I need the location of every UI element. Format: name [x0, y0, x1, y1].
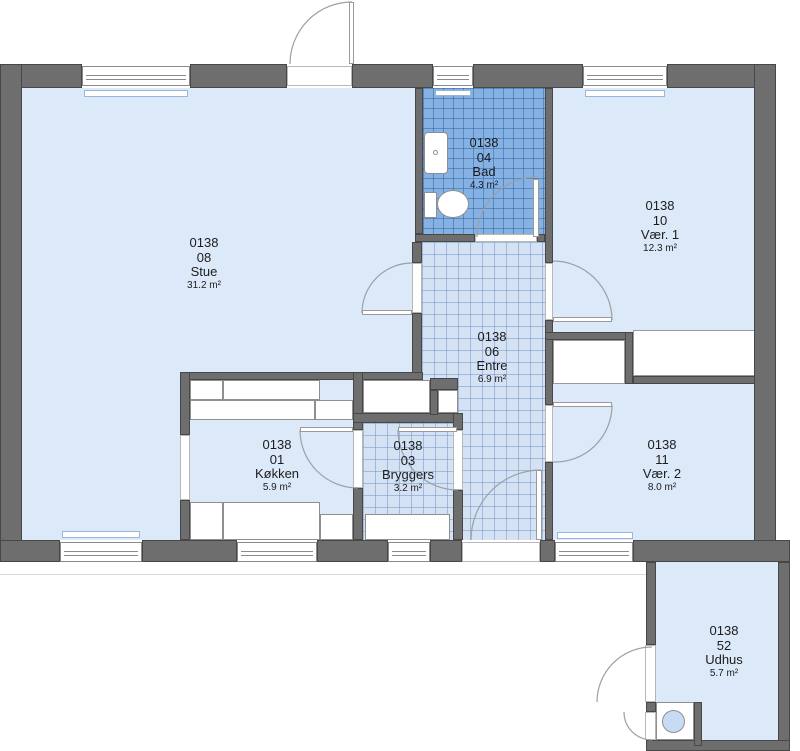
- door-leaf: [553, 317, 612, 322]
- window: [237, 542, 317, 562]
- kitchen-counter: [315, 400, 353, 420]
- wall: [646, 740, 790, 751]
- door-leaf: [398, 427, 457, 432]
- room-id: 0138: [705, 624, 743, 639]
- room-number: 03: [382, 453, 434, 468]
- wall: [545, 332, 627, 340]
- wall: [540, 540, 555, 562]
- room-label-bad: 0138 04 Bad 4.3 m²: [470, 136, 499, 192]
- room-id: 0138: [476, 330, 507, 345]
- wall: [0, 540, 60, 562]
- room-name: Stue: [187, 265, 221, 280]
- room-number: 06: [476, 344, 507, 359]
- kitchen-counter: [190, 400, 315, 420]
- room-id: 0138: [470, 136, 499, 151]
- toilet-tank: [424, 192, 437, 218]
- door-opening-koekken: [353, 430, 363, 488]
- room-label-entre: 0138 06 Entre 6.9 m²: [476, 330, 507, 386]
- room-label-udhus: 0138 52 Udhus 5.7 m²: [705, 624, 743, 680]
- wall: [353, 413, 463, 423]
- door-opening-vaer-2: [545, 405, 553, 462]
- closet-vaer-1: [633, 330, 755, 376]
- wall: [545, 462, 553, 540]
- door-leaf: [536, 470, 542, 540]
- window-sill: [585, 90, 665, 97]
- door-leaf: [300, 427, 353, 432]
- ground-line: [0, 574, 646, 575]
- room-name: Bryggers: [382, 468, 434, 483]
- window-sill: [435, 90, 471, 96]
- room-name: Vær. 2: [643, 467, 681, 482]
- wall: [142, 540, 237, 562]
- room-area: 31.2 m²: [187, 280, 221, 293]
- room-name: Bad: [470, 165, 499, 180]
- window: [82, 66, 190, 86]
- room-number: 11: [643, 452, 681, 467]
- window-sill: [62, 531, 140, 538]
- door-leaf: [553, 402, 612, 407]
- door-leaf: [349, 2, 354, 64]
- room-name: Entre: [476, 359, 507, 374]
- room-area: 5.7 m²: [705, 668, 743, 681]
- wall: [754, 64, 776, 562]
- door-opening-bryggers: [453, 430, 463, 490]
- window: [583, 66, 667, 86]
- wall: [646, 562, 656, 645]
- bryggers-appliance: [365, 514, 450, 540]
- wall: [778, 562, 790, 748]
- kitchen-counter: [190, 502, 223, 540]
- room-area: 6.9 m²: [476, 374, 507, 387]
- kitchen-counter: [190, 380, 223, 400]
- room-number: 52: [705, 638, 743, 653]
- room-label-vaer-1: 0138 10 Vær. 1 12.3 m²: [641, 199, 679, 255]
- udhus-basin: [662, 710, 685, 733]
- wall: [430, 540, 462, 562]
- door-opening-stue: [412, 263, 422, 313]
- door-leaf: [533, 179, 539, 237]
- wall: [353, 488, 363, 540]
- wall: [633, 376, 755, 384]
- duct-shaft: [438, 390, 458, 413]
- room-id: 0138: [255, 438, 299, 453]
- room-name: Køkken: [255, 467, 299, 482]
- door-opening-back: [462, 542, 540, 562]
- wall: [0, 64, 22, 562]
- floor-plan: 0138 08 Stue 31.2 m² 0138 04 Bad 4.3 m² …: [0, 0, 800, 751]
- wall: [545, 88, 553, 263]
- wall: [430, 390, 438, 415]
- room-number: 10: [641, 213, 679, 228]
- wall: [190, 64, 287, 88]
- kitchen-counter: [223, 502, 320, 540]
- room-area: 5.9 m²: [255, 482, 299, 495]
- room-label-stue: 0138 08 Stue 31.2 m²: [187, 236, 221, 292]
- window-sill: [557, 532, 633, 539]
- room-area: 12.3 m²: [641, 243, 679, 256]
- room-area: 3.2 m²: [382, 483, 434, 496]
- room-id: 0138: [641, 199, 679, 214]
- wall: [415, 234, 475, 242]
- wall: [180, 372, 423, 380]
- sink-drain: [433, 150, 438, 155]
- room-label-koekken: 0138 01 Køkken 5.9 m²: [255, 438, 299, 494]
- kitchen-counter: [223, 380, 320, 400]
- wall: [694, 702, 702, 746]
- wall: [625, 332, 633, 384]
- wall: [473, 64, 583, 88]
- door-opening-udhus-2: [645, 712, 656, 740]
- wall: [180, 500, 190, 540]
- room-area: 8.0 m²: [643, 482, 681, 495]
- room-name: Vær. 1: [641, 228, 679, 243]
- wall: [180, 372, 190, 435]
- wall: [317, 540, 388, 562]
- wall: [352, 64, 433, 88]
- kitchen-counter: [320, 514, 353, 540]
- room-label-vaer-2: 0138 11 Vær. 2 8.0 m²: [643, 438, 681, 494]
- window: [433, 66, 473, 86]
- wall: [412, 313, 422, 380]
- wall: [453, 490, 463, 540]
- door-opening-vaer-1: [545, 263, 553, 320]
- door-leaf: [362, 310, 412, 315]
- door-opening-bad: [475, 234, 537, 242]
- door-opening-entrance: [287, 66, 352, 86]
- wall: [430, 378, 458, 390]
- room-name: Udhus: [705, 653, 743, 668]
- room-label-bryggers: 0138 03 Bryggers 3.2 m²: [382, 439, 434, 495]
- wall: [646, 702, 656, 712]
- room-number: 01: [255, 452, 299, 467]
- room-id: 0138: [382, 439, 434, 454]
- window: [555, 542, 633, 562]
- room-id: 0138: [187, 236, 221, 251]
- door-opening-udhus-1: [645, 645, 656, 702]
- window: [60, 542, 142, 562]
- room-number: 08: [187, 250, 221, 265]
- wall: [633, 540, 790, 562]
- window-sill: [84, 90, 188, 97]
- window: [388, 542, 430, 562]
- wall: [412, 242, 422, 263]
- room-area: 4.3 m²: [470, 180, 499, 193]
- closet-vaer-2: [553, 340, 625, 384]
- toilet-bowl: [437, 190, 469, 218]
- room-number: 04: [470, 150, 499, 165]
- room-id: 0138: [643, 438, 681, 453]
- wall: [415, 88, 423, 234]
- bryggers-counter: [363, 380, 430, 413]
- door-opening-koekken-stue: [180, 435, 190, 500]
